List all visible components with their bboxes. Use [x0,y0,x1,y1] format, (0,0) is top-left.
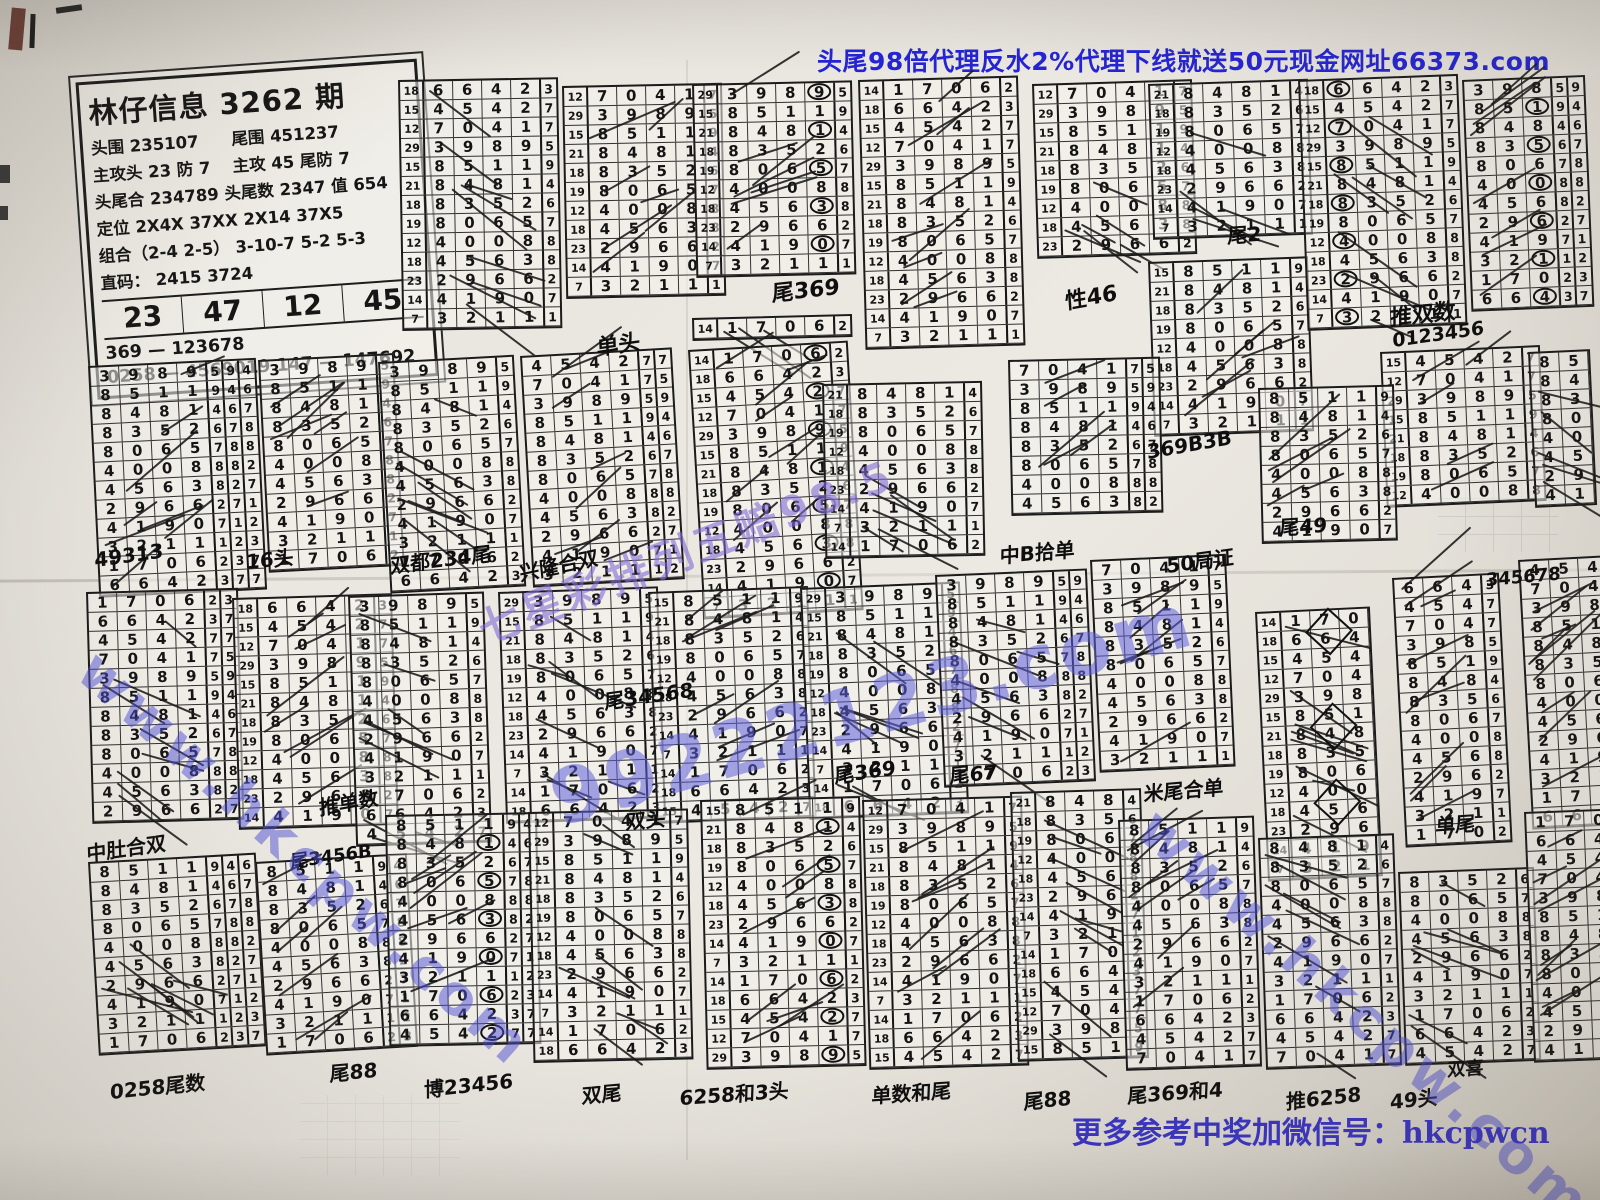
grid-cell: 5 [1040,399,1069,418]
grid-cell: 4 [354,711,384,730]
grid-cell: 19 [1151,123,1176,142]
grid-cell: 9 [1088,102,1118,121]
grid-cell: 1 [1352,969,1382,988]
grid-cell: 0 [752,499,782,519]
grid-cell: 2 [354,730,384,749]
grid-cell: 2 [943,709,973,728]
grid-cell: 2 [818,988,847,1007]
grid-cell: 9 [496,376,514,395]
grid-cell: 0 [1318,781,1348,800]
number-grid-block: 1706236642374542777041753989598511948481… [86,588,244,824]
grid-cell: 8 [240,912,258,931]
grid-cell: 1 [1491,802,1509,821]
grid-cell: 9 [448,948,477,967]
grid-cell: 5 [924,1047,953,1066]
grid-cell: 9 [561,525,591,545]
grid-cell: 18 [1300,81,1325,100]
grid-cell: 0 [980,969,1009,988]
grid-cell: 0 [1430,910,1460,929]
grid-cell: 9 [1426,634,1456,653]
grid-cell: 5 [1557,850,1587,869]
grid-cell: 4 [96,480,126,499]
grid-cell: 0 [588,486,618,506]
grid-cell: 4 [1406,352,1436,371]
grid-cell: 4 [1404,968,1434,987]
grid-cell: 8 [542,231,559,249]
grid-cell: 6 [1376,854,1394,873]
grid-cell: 15 [501,612,526,631]
grid-cell: 2 [267,493,297,512]
grid-cell: 6 [1233,120,1263,139]
grid-cell: 8 [208,761,225,779]
grid-cell: 7 [1125,359,1142,377]
grid-cell: 4 [1290,277,1308,296]
grid-cell: 18 [533,946,557,965]
grid-cell: 6 [1502,288,1532,307]
grid-cell: 4 [944,728,974,747]
grid-cell: 6 [1324,80,1354,99]
grid-cell: 4 [584,869,613,888]
grid-cell: 6 [514,269,543,288]
grid-cell: 0 [892,775,922,794]
grid-row: 2939895 [708,1045,864,1068]
grid-cell: 0 [920,895,949,914]
grid-cell: 8 [890,857,919,876]
grid-cell: 8 [675,611,705,630]
grid-cell: 2 [387,495,417,515]
grid-cell: 0 [289,917,319,937]
grid-cell: 2 [672,962,689,980]
grid-cell: 4 [1402,930,1432,949]
number-grid-block: 7041753989598511948481468352678065784008… [1008,357,1163,516]
grid-cell: 1 [1129,730,1159,749]
grid-cell: 9 [296,492,326,511]
grid-cell: 4 [259,617,289,636]
grid-cell: 5 [584,850,613,869]
grid-cell: 2 [614,446,644,466]
grid-cell: 0 [619,181,648,200]
grid-cell: 4 [427,233,456,252]
grid-cell: 7 [1070,943,1100,962]
grid-cell: 1 [477,967,506,986]
grid-cell: 6 [412,728,442,747]
grid-cell: 3 [722,256,751,275]
grid-cell: 5 [1125,378,1142,396]
grid-cell: 0 [1425,615,1455,634]
grid-cell: 1 [612,608,642,627]
grid-cell: 8 [319,692,349,711]
grid-cell: 6 [1353,79,1383,98]
grid-cell: 1 [243,969,261,988]
grid-cell: 1 [178,876,208,896]
grid-cell: 5 [643,906,672,925]
grid-cell: 8 [527,668,557,687]
grid-cell: 6 [1350,931,1380,950]
grid-cell: 6 [981,1007,1010,1026]
grid-cell: 1 [762,608,792,627]
grid-cell: 23 [1153,180,1178,199]
grid-cell: 7 [1127,454,1144,472]
grid-cell: 4 [1342,665,1372,684]
grid-cell: 5 [383,710,413,729]
grid-cell: 6 [998,649,1028,668]
grid-cell: 4 [482,80,511,99]
grid-cell: 1 [384,748,414,767]
grid-cell: 0 [1041,456,1070,475]
grid-cell: 5 [906,403,935,422]
grid-cell: 8 [940,652,970,671]
grid-cell: 8 [1261,446,1290,465]
grid-cell: 2 [965,478,982,496]
grid-cell: 9 [747,84,776,103]
grid-cell: 0 [184,514,214,533]
grid-cell: 0 [749,160,778,179]
grid-cell: 4 [1332,289,1362,308]
grid-cell: 3 [1429,691,1459,710]
grid-cell: 6 [785,856,814,875]
grid-cell: 18 [698,483,723,502]
grid-cell: 4 [1039,906,1069,925]
grid-row: 732111 [568,275,724,297]
grid-cell: 4 [721,237,750,256]
grid-cell: 2 [975,211,1004,230]
handwritten-note: 双头 [625,803,665,836]
grid-cell: 6 [155,497,185,516]
grid-cell: 1 [894,1009,923,1028]
grid-cell: 4 [1567,96,1585,115]
grid-cell: 1 [1494,367,1524,386]
grid-cell: 6 [1213,989,1243,1008]
grid-cell: 3 [381,653,411,672]
grid-cell: 5 [1589,943,1600,962]
grid-cell: 6 [150,743,179,762]
grid-cell: 9 [779,235,808,254]
grid-cell: 5 [321,414,351,433]
grid-cell: 12 [862,138,886,157]
grid-cell: 0 [153,459,183,478]
grid-cell: 2 [591,239,620,258]
grid-cell: 8 [1318,837,1348,856]
grid-cell: 8 [1401,892,1431,911]
grid-cell: 4 [1405,787,1435,806]
grid-cell: 9 [833,101,850,119]
grid-cell: 2 [203,590,220,608]
grid-cell: 7 [673,981,690,999]
grid-cell: 5 [484,194,513,213]
grid-cell: 0 [1430,891,1460,910]
grid-cell: 2 [1415,190,1445,209]
grid-cell: 0 [1126,673,1156,692]
grid-cell: 6 [907,422,936,441]
grid-cell: 3 [1381,1006,1399,1025]
grid-cell: 8 [93,919,123,939]
grid-cell: 4 [1464,1023,1494,1042]
grid-cell: 9 [1068,886,1098,905]
grid-cell: 8 [1455,632,1485,651]
grid-cell: 8 [556,889,585,908]
grid-cell: 8 [208,780,225,798]
grid-cell: 8 [1012,437,1041,456]
grid-cell: 0 [1313,667,1343,686]
grid-cell: 1 [1212,970,1242,989]
handwritten-note: 尾88 [1023,1082,1071,1115]
grid-cell: 2 [1492,821,1510,840]
grid-cell: 5 [879,460,908,479]
grid-cell: 6 [947,269,976,288]
grid-cell: 0 [413,437,443,457]
grid-cell: 1 [178,381,208,400]
grid-cell: 0 [1491,965,1521,984]
grid-cell: 0 [122,918,152,938]
handwritten-note: 尾67 [949,756,997,789]
grid-cell: 6 [834,139,851,157]
grid-cell: 0 [292,749,322,768]
grid-cell: 5 [513,213,542,232]
grid-cell: 7 [1242,1027,1260,1046]
grid-cell: 8 [180,762,209,781]
grid-cell: 2 [176,610,205,629]
grid-cell: 4 [773,364,803,384]
grid-cell: 5 [618,124,647,143]
grid-cell: 0 [619,200,648,219]
grid-cell: 0 [1497,174,1527,193]
grid-cell: 5 [669,830,686,848]
grid-cell: 5 [1292,914,1322,933]
grid-cell: 1 [978,325,1007,344]
grid-cell: 8 [181,933,211,953]
grid-cell: 9 [126,498,156,517]
grid-cell: 0 [585,907,614,926]
grid-cell: 9 [1593,1038,1600,1057]
grid-cell: 4 [557,946,586,965]
grid-cell: 5 [1289,389,1318,408]
grid-cell: 9 [1024,572,1054,591]
grid-cell: 8 [660,482,678,501]
grid-cell: 0 [556,686,586,705]
grid-cell: 4 [416,835,445,854]
grid-cell: 5 [1557,711,1587,731]
grid-cell: 8 [1523,617,1553,637]
grid-cell: 1 [1265,991,1295,1010]
grid-cell: 0 [291,730,321,749]
grid-cell: 5 [1356,155,1386,174]
grid-cell: 4 [892,933,921,952]
grid-cell: 8 [727,839,756,858]
grid-cell: 4 [748,122,777,141]
grid-cell: 8 [426,214,455,233]
grid-cell: 8 [1411,466,1441,485]
grid-cell: 0 [915,137,944,156]
grid-cell: 9 [456,271,485,290]
grid-cell: 4 [728,896,757,915]
grid-cell: 5 [560,506,590,526]
grid-cell: 8 [1409,428,1439,447]
grid-cell: 1 [1559,749,1589,769]
grid-cell: 6 [710,781,740,800]
grid-cell: 5 [1099,454,1128,473]
grid-cell: 1 [513,175,542,194]
grid-cell: 23 [240,789,265,808]
grid-cell: 0 [355,508,385,527]
grid-cell: 4 [1324,1008,1354,1027]
grid-cell: 7 [117,592,146,611]
grid-cell: 6 [1070,455,1099,474]
grid-cell: 4 [1209,613,1227,632]
grid-cell: 3 [1101,750,1131,769]
grid-cell: 2 [678,706,708,725]
grid-cell: 2 [559,762,589,781]
grid-cell: 21 [1304,176,1329,195]
grid-cell: 9 [1462,966,1492,985]
grid-cell: 5 [1354,98,1384,117]
grid-cell: 9 [1292,933,1322,952]
grid-cell: 1 [178,705,207,724]
grid-cell: 5 [1583,652,1600,672]
grid-cell: 1 [884,80,913,99]
grid-cell: 7 [506,1023,523,1041]
grid-cell: 0 [485,232,514,251]
grid-cell: 8 [426,195,455,214]
grid-cell: 5 [446,853,475,872]
grid-cell: 9 [707,705,737,724]
grid-cell: 4 [890,308,919,327]
grid-cell: 3 [530,763,560,782]
grid-cell: 18 [695,142,719,161]
grid-cell: 1 [1523,97,1553,116]
grid-cell: 7 [568,277,592,295]
grid-cell: 6 [1127,435,1144,453]
grid-cell: 2 [471,784,489,803]
grid-cell: 15 [650,593,675,612]
grid-cell: 8 [936,440,965,459]
grid-cell: 8 [1400,873,1430,892]
handwritten-note: 米尾合单 [1143,771,1223,807]
grid-cell: 0 [1555,673,1585,693]
grid-cell: 7 [869,991,893,1010]
grid-cell: 0 [1347,779,1377,798]
grid-cell: 8 [526,432,556,452]
grid-cell: 8 [529,470,559,490]
grid-cell: 5 [1360,250,1390,269]
grid-cell: 9 [976,817,1005,836]
grid-cell: 4 [385,457,415,477]
grid-cell: 8 [891,895,920,914]
grid-cell: 6 [950,951,979,970]
grid-cell: 8 [555,851,584,870]
grid-cell: 6 [1525,154,1555,173]
grid-cell: 4 [263,957,293,977]
grid-cell: 0 [1388,230,1418,249]
grid-cell: 7 [888,801,917,820]
grid-cell: 5 [1183,652,1213,671]
grid-cell: 8 [659,463,677,482]
grid-cell: 5 [948,875,977,894]
grid-cell: 9 [1002,725,1032,744]
grid-cell: 4 [1579,576,1600,596]
grid-cell: 0 [858,663,888,682]
grid-cell: 18 [701,540,726,559]
grid-cell: 8 [1410,447,1440,466]
grid-cell: 1 [438,632,468,651]
grid-cell: 12 [704,877,728,896]
grid-cell: 2 [1378,930,1396,949]
grid-cell: 0 [1591,981,1600,1000]
grid-cell: 4 [268,512,298,531]
grid-cell: 12 [530,813,554,832]
grid-cell: 6 [963,402,980,420]
grid-cell: 4 [1262,465,1291,484]
grid-cell: 9 [587,742,617,761]
grid-cell: 2 [802,363,832,383]
grid-cell: 3 [183,476,213,495]
handwritten-note: 博23456 [424,1065,513,1104]
grid-cell: 19 [1305,214,1330,233]
grid-cell: 4 [89,631,118,650]
grid-cell: 4 [1533,984,1563,1003]
grid-cell: 0 [1155,672,1185,691]
grid-cell: 0 [816,931,845,950]
grid-cell: 1 [1025,591,1055,610]
grid-cell: 29 [694,85,718,104]
grid-cell: 15 [1262,708,1287,727]
grid-cell: 12 [235,637,260,656]
grid-cell: 4 [121,403,151,422]
grid-cell: 5 [814,855,843,874]
grid-cell: 3 [1357,193,1387,212]
grid-cell: 6 [715,368,745,388]
grid-cell: 29 [1035,104,1060,123]
grid-cell: 0 [443,454,473,474]
grid-cell: 8 [1117,102,1147,121]
grid-cell: 7 [1571,210,1589,229]
grid-cell: 8 [590,163,619,182]
grid-cell: 6 [441,727,471,746]
grid-cell: 4 [1443,171,1461,190]
grid-cell: 7 [1070,627,1088,646]
grid-cell: 4 [1395,597,1425,616]
grid-cell: 2 [818,1007,847,1026]
grid-cell: 8 [320,395,350,414]
grid-cell: 0 [557,468,587,488]
grid-cell: 0 [756,857,785,876]
grid-cell: 8 [261,693,291,712]
grid-cell: 7 [504,947,521,965]
grid-cell: 6 [657,425,675,444]
grid-cell: 9 [466,613,484,632]
grid-cell: 4 [1534,428,1564,447]
grid-cell: 0 [456,233,485,252]
grid-cell: 8 [1213,689,1231,708]
grid-cell: 7 [964,421,981,439]
grid-cell: 7 [1561,786,1591,806]
grid-cell: 6 [889,699,919,718]
grid-cell: 0 [705,648,735,667]
grid-cell: 1 [1495,405,1525,424]
grid-cell: 6 [175,591,204,610]
grid-row: 70417 [1267,1044,1399,1068]
grid-cell: 1 [1564,1039,1594,1058]
grid-cell: 6 [324,471,354,490]
grid-cell: 5 [1067,867,1097,886]
grid-cell: 1 [1407,825,1437,844]
grid-cell: 8 [1069,417,1098,436]
grid-cell: 29 [530,832,554,851]
grid-cell: 8 [257,862,287,882]
grid-cell: 2 [1534,1022,1564,1041]
grid-cell: 4 [1013,475,1042,494]
grid-cell: 4 [1262,484,1291,503]
grid-cell: 2 [1214,708,1232,727]
